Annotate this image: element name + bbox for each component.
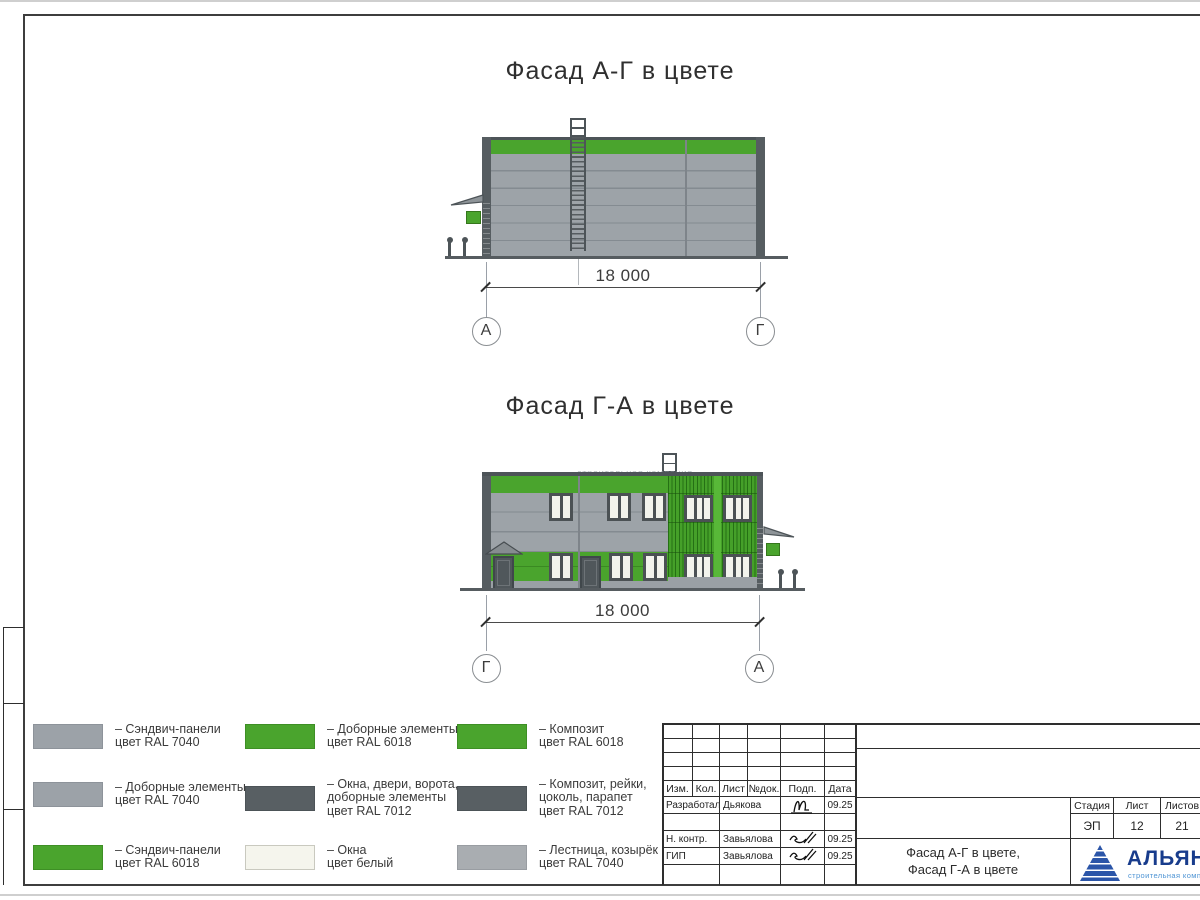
green-sign-box — [466, 211, 481, 224]
sheet-label: Лист — [1114, 798, 1160, 813]
document-title-line1: Фасад А-Г в цвете, — [856, 844, 1070, 861]
dimension-line — [486, 622, 759, 623]
axis-marker-g: Г — [472, 654, 501, 683]
legend-item: – Доборные элементыцвет RAL 7040 — [33, 768, 246, 820]
signature — [786, 830, 822, 847]
company-logo-icon — [1080, 845, 1120, 881]
facade-ladder — [570, 137, 586, 251]
titleblock-border — [662, 723, 1200, 725]
titleblock-line — [662, 766, 855, 767]
signature — [786, 795, 822, 817]
swatch-white — [245, 845, 315, 870]
panel-section — [491, 476, 668, 590]
header-kol: Кол. — [693, 781, 719, 796]
dimension-value: 18 000 — [486, 266, 760, 286]
facade1-drawing: 18 000 А Г — [430, 100, 810, 360]
green-accent-strip — [714, 476, 721, 577]
axis-marker-g: Г — [746, 317, 775, 346]
legend-label: – Лестница, козырёкцвет RAL 7040 — [539, 844, 658, 871]
sheets-label: Листов — [1161, 798, 1200, 813]
legend-item: – Композит, рейки,цоколь, парапетцвет RA… — [457, 772, 647, 824]
role-developer: Разработал — [663, 797, 719, 813]
cage-divider — [664, 463, 675, 465]
titleblock-line — [856, 748, 1200, 749]
titleblock-line — [662, 864, 855, 865]
roof-ladder-cage — [570, 118, 586, 137]
green-top-band — [491, 140, 756, 155]
composite-slat-section — [668, 476, 757, 577]
header-izm: Изм. — [663, 781, 692, 796]
company-logo-tagline: строительная компания — [1128, 871, 1200, 880]
facade1-title: Фасад А-Г в цвете — [360, 57, 880, 86]
margin-box-line — [3, 809, 24, 810]
document-title-line2: Фасад Г-А в цвете — [856, 861, 1070, 878]
window — [723, 495, 752, 522]
sandwich-panels — [491, 154, 756, 257]
axis-marker-a: А — [472, 317, 501, 346]
dimension-value: 18 000 — [486, 601, 759, 621]
entrance-door — [493, 556, 514, 590]
name-ncontrol: Завьялова — [720, 831, 780, 847]
margin-box-line — [3, 703, 24, 704]
window — [684, 495, 713, 522]
legend-label: – Доборные элементыцвет RAL 6018 — [327, 723, 458, 750]
facade2-drawing: строительная компания — [430, 440, 820, 700]
sheet-number: 12 — [1114, 814, 1160, 837]
side-canopy — [763, 524, 795, 542]
stage-label: Стадия — [1071, 798, 1113, 813]
ground-line — [460, 588, 805, 591]
legend-item: – Доборные элементыцвет RAL 6018 — [245, 710, 458, 762]
margin-box-line — [3, 627, 24, 628]
document-title: Фасад А-Г в цвете, Фасад Г-А в цвете — [856, 844, 1070, 878]
titleblock-line — [856, 838, 1200, 839]
legend-label: – Окнацвет белый — [327, 844, 393, 871]
facade2-title: Фасад Г-А в цвете — [360, 392, 880, 421]
facade2-wall — [482, 472, 763, 590]
entrance-canopy — [450, 192, 484, 210]
facade1-wall — [482, 137, 765, 257]
date-gip: 09.25 — [825, 848, 855, 864]
legend-item: – Окна, двери, ворота,доборные элементыц… — [245, 772, 458, 824]
dimension-line — [486, 287, 760, 288]
role-gip: ГИП — [663, 848, 719, 864]
legend-item: – Лестница, козырёкцвет RAL 7040 — [457, 831, 658, 883]
floor-line — [668, 552, 757, 553]
bollard-light — [448, 242, 451, 257]
titleblock-line — [662, 813, 855, 814]
legend-label: – Сэндвич-панелицвет RAL 6018 — [115, 844, 221, 871]
frame-top — [23, 14, 1200, 16]
swatch-ral6018 — [33, 845, 103, 870]
legend-label: – Композитцвет RAL 6018 — [539, 723, 624, 750]
swatch-ral7012 — [457, 786, 527, 811]
date-developer: 09.25 — [825, 797, 855, 813]
legend-label: – Доборные элементыцвет RAL 7040 — [115, 781, 246, 808]
titleblock-line — [780, 723, 781, 885]
company-logo-name: АЛЬЯНС — [1127, 847, 1200, 871]
window — [642, 493, 666, 521]
header-data: Дата — [825, 781, 855, 796]
name-gip: Завьялова — [720, 848, 780, 864]
page-bottom-edge — [0, 894, 1200, 896]
bollard-light — [463, 242, 466, 257]
floor-line — [668, 522, 757, 523]
legend-label: – Сэндвич-панелицвет RAL 7040 — [115, 723, 221, 750]
frame-left — [23, 14, 25, 885]
door-canopy — [485, 541, 523, 555]
legend-label: – Композит, рейки,цоколь, парапетцвет RA… — [539, 778, 647, 819]
name-developer: Дьякова — [720, 797, 780, 813]
bollard-light — [793, 574, 796, 589]
right-edge-column — [756, 137, 765, 257]
swatch-ral7012 — [245, 786, 315, 811]
legend-item: – Композитцвет RAL 6018 — [457, 710, 624, 762]
window — [643, 553, 667, 581]
swatch-ral7040 — [33, 724, 103, 749]
left-edge-column — [482, 476, 491, 590]
bollard-light — [779, 574, 782, 589]
swatch-ral7040-light — [457, 845, 527, 870]
sheets-total: 21 — [1161, 814, 1200, 837]
legend-item: – Сэндвич-панелицвет RAL 7040 — [33, 710, 221, 762]
drawing-sheet: Фасад А-Г в цвете Фасад Г-А в цвете — [0, 0, 1200, 900]
green-top-band — [491, 476, 668, 494]
swatch-ral6018 — [245, 724, 315, 749]
legend-item: – Сэндвич-панелицвет RAL 6018 — [33, 831, 221, 883]
ground-line — [445, 256, 788, 259]
window — [607, 493, 631, 521]
header-ndok: №док. — [748, 781, 780, 796]
swatch-ral6018 — [457, 724, 527, 749]
swatch-ral7040 — [33, 782, 103, 807]
page-top-edge — [0, 0, 1200, 2]
margin-column-line — [3, 627, 4, 885]
legend-item: – Окнацвет белый — [245, 831, 393, 883]
window — [609, 553, 633, 581]
titleblock-line — [662, 738, 855, 739]
floor-line — [668, 493, 757, 494]
stage-value: ЭП — [1071, 814, 1113, 837]
header-podp: Подп. — [781, 781, 824, 796]
green-sign-box — [766, 543, 780, 556]
titleblock-line — [662, 752, 855, 753]
extension-line — [760, 262, 761, 318]
legend-label: – Окна, двери, ворота,доборные элементыц… — [327, 778, 458, 819]
window — [549, 553, 573, 581]
corner-ladder-rungs — [483, 203, 490, 255]
date-ncontrol: 09.25 — [825, 831, 855, 847]
entrance-door — [580, 556, 601, 590]
frame-bottom — [23, 884, 1200, 886]
cage-divider — [572, 127, 584, 129]
header-list: Лист — [720, 781, 747, 796]
axis-marker-a: А — [745, 654, 774, 683]
panel-joint — [685, 140, 687, 257]
signature — [786, 847, 822, 864]
window — [549, 493, 573, 521]
role-ncontrol: Н. контр. — [663, 831, 719, 847]
